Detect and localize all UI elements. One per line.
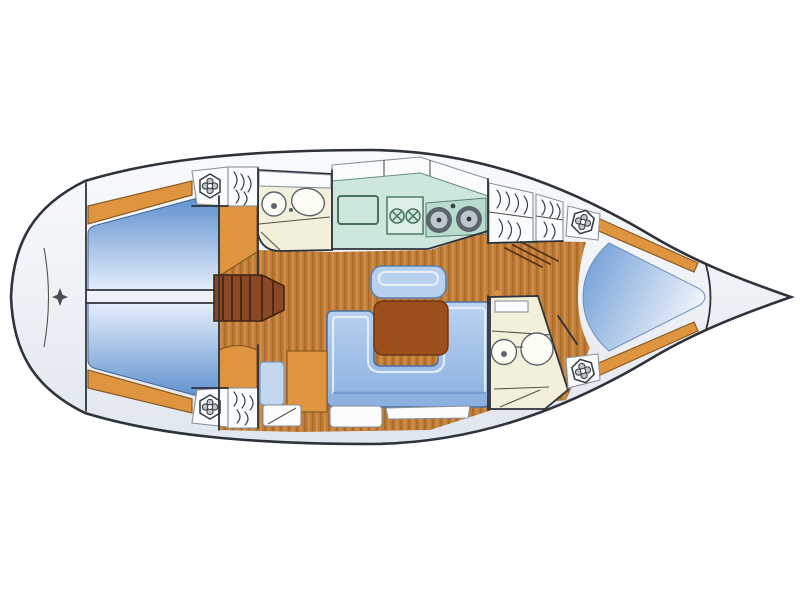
- winch-icon: [200, 174, 220, 198]
- refrigerator-icon: [338, 196, 378, 224]
- stowage-locker: [386, 406, 470, 419]
- stove-burner-icon: [390, 209, 404, 223]
- stowage-locker: [330, 406, 382, 427]
- chart-cabinet: [287, 351, 327, 412]
- winch-icon: [200, 395, 220, 419]
- aft-head: [258, 170, 332, 251]
- round-sink-icon: [456, 206, 482, 232]
- stove-burner-icon: [406, 209, 420, 223]
- salon-table: [374, 301, 448, 355]
- nav-seat: [260, 362, 284, 405]
- toilet-drain: [271, 203, 277, 209]
- forward-head-shelf: [495, 301, 528, 312]
- toilet-drain: [501, 351, 507, 357]
- cabinet-lower: [219, 346, 257, 391]
- yacht-floor-plan: [0, 0, 800, 600]
- washbasin-icon: [521, 333, 553, 365]
- door-hinge-dot: [494, 290, 500, 296]
- galley-faucet-dot: [451, 204, 456, 209]
- round-sink-icon: [426, 207, 452, 233]
- floor-plan-canvas: [0, 0, 800, 600]
- faucet-dot: [289, 208, 293, 212]
- wardrobe-aft-starboard: [228, 388, 258, 428]
- bench-seat: [371, 266, 446, 298]
